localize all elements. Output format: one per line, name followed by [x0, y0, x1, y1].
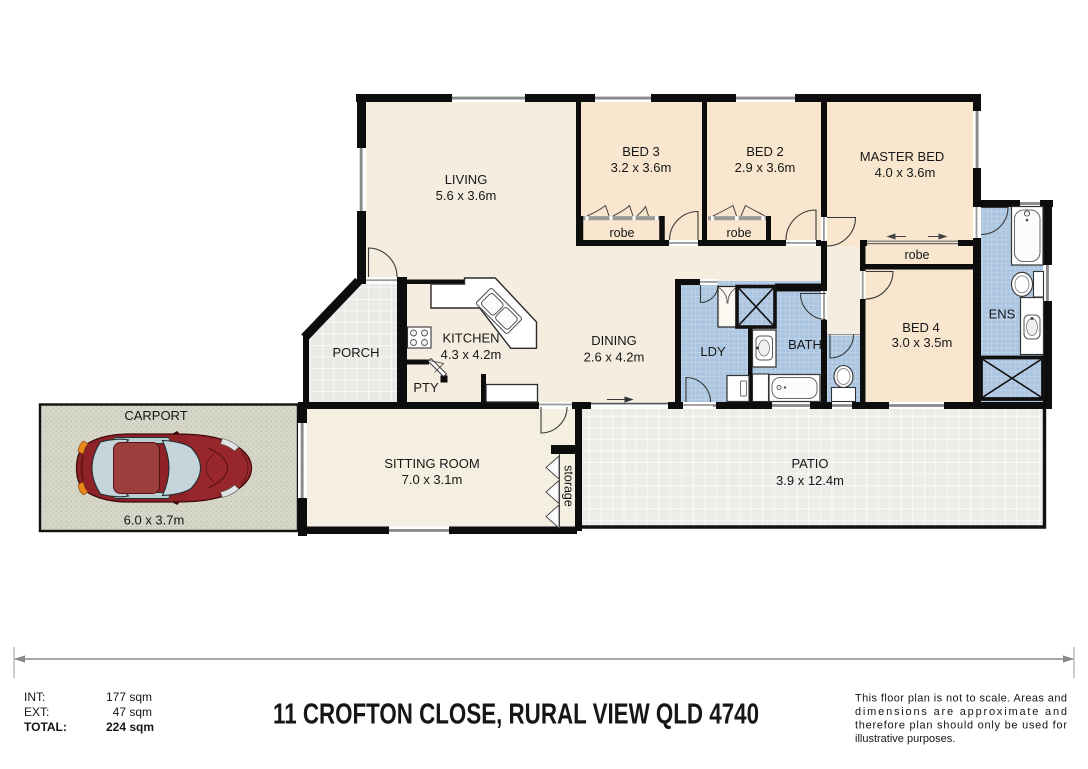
- svg-text:PORCH: PORCH: [333, 345, 380, 360]
- svg-text:robe: robe: [904, 248, 929, 262]
- svg-text:EXT:: EXT:: [24, 705, 49, 719]
- svg-text:BED 4: BED 4: [902, 320, 940, 335]
- svg-text:robe: robe: [609, 226, 634, 240]
- svg-text:BATH: BATH: [788, 337, 822, 352]
- svg-text:3.2 x 3.6m: 3.2 x 3.6m: [611, 160, 672, 175]
- svg-text:BED 2: BED 2: [746, 144, 784, 159]
- svg-text:4.0 x 3.6m: 4.0 x 3.6m: [875, 165, 936, 180]
- svg-text:LDY: LDY: [700, 344, 726, 359]
- svg-text:ENS: ENS: [989, 307, 1016, 322]
- svg-text:PTY: PTY: [413, 380, 439, 395]
- svg-text:INT:: INT:: [24, 690, 45, 704]
- svg-text:This floor plan is not to scal: This floor plan is not to scale. Areas a…: [855, 693, 1067, 705]
- svg-text:KITCHEN: KITCHEN: [442, 331, 499, 346]
- svg-text:MASTER BED: MASTER BED: [860, 149, 945, 164]
- svg-text:7.0 x 3.1m: 7.0 x 3.1m: [402, 472, 463, 487]
- svg-text:47 sqm: 47 sqm: [113, 705, 152, 719]
- svg-text:11 CROFTON CLOSE, RURAL VIEW Q: 11 CROFTON CLOSE, RURAL VIEW QLD 4740: [273, 699, 759, 731]
- svg-text:TOTAL:: TOTAL:: [24, 720, 67, 734]
- svg-text:3.9 x 12.4m: 3.9 x 12.4m: [776, 473, 844, 488]
- svg-text:224 sqm: 224 sqm: [106, 720, 154, 734]
- svg-text:2.6 x 4.2m: 2.6 x 4.2m: [584, 350, 645, 365]
- svg-text:PATIO: PATIO: [791, 456, 828, 471]
- svg-text:DINING: DINING: [591, 333, 637, 348]
- svg-text:storage: storage: [562, 465, 576, 507]
- svg-text:therefore plan should only be: therefore plan should only be used for: [855, 720, 1067, 732]
- svg-text:177 sqm: 177 sqm: [106, 690, 152, 704]
- svg-text:BED 3: BED 3: [622, 144, 660, 159]
- svg-text:2.9 x 3.6m: 2.9 x 3.6m: [735, 160, 796, 175]
- svg-text:3.0 x 3.5m: 3.0 x 3.5m: [892, 335, 953, 350]
- svg-text:robe: robe: [726, 226, 751, 240]
- svg-text:dimensions are approximate and: dimensions are approximate and: [855, 706, 1067, 718]
- svg-text:4.3 x 4.2m: 4.3 x 4.2m: [441, 347, 502, 362]
- svg-text:CARPORT: CARPORT: [124, 408, 187, 423]
- svg-text:6.0 x 3.7m: 6.0 x 3.7m: [124, 513, 185, 528]
- svg-text:illustrative purposes.: illustrative purposes.: [855, 733, 955, 745]
- svg-text:LIVING: LIVING: [445, 172, 488, 187]
- svg-text:SITTING ROOM: SITTING ROOM: [384, 456, 479, 471]
- svg-text:5.6 x 3.6m: 5.6 x 3.6m: [436, 188, 497, 203]
